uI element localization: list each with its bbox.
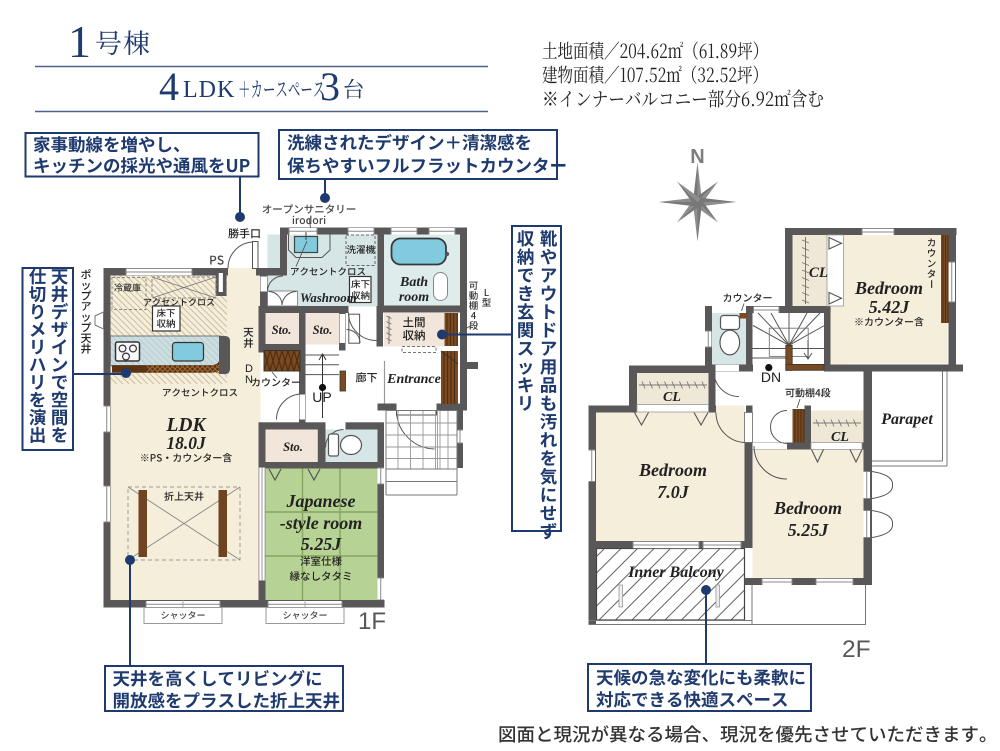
svg-text:1F: 1F <box>358 608 386 635</box>
svg-text:1: 1 <box>68 16 91 67</box>
svg-text:Washroom: Washroom <box>300 291 357 305</box>
svg-text:UP: UP <box>312 389 331 405</box>
svg-text:CL: CL <box>831 430 849 445</box>
svg-text:Inner Balcony: Inner Balcony <box>627 564 724 581</box>
svg-text:Bedroom: Bedroom <box>773 498 842 518</box>
svg-text:CL: CL <box>809 265 828 281</box>
svg-text:CL: CL <box>663 390 681 405</box>
svg-text:Parapet: Parapet <box>880 411 933 428</box>
svg-text:5.25J: 5.25J <box>301 534 343 554</box>
svg-text:5.42J: 5.42J <box>869 297 911 317</box>
svg-text:N: N <box>690 146 704 168</box>
svg-text:N: N <box>245 374 253 386</box>
svg-text:Bedroom: Bedroom <box>854 278 923 298</box>
svg-text:Entrance: Entrance <box>386 372 441 387</box>
svg-text:Bedroom: Bedroom <box>638 460 707 480</box>
svg-text:LDK: LDK <box>183 77 235 103</box>
svg-text:Sto.: Sto. <box>313 323 333 337</box>
svg-text:Sto.: Sto. <box>272 323 292 337</box>
svg-text:-style room: -style room <box>280 513 363 533</box>
svg-text:4: 4 <box>159 64 179 109</box>
svg-text:room: room <box>399 290 429 305</box>
svg-text:18.0J: 18.0J <box>166 433 207 453</box>
svg-text:Bath: Bath <box>399 275 428 290</box>
svg-text:3: 3 <box>320 64 340 109</box>
svg-text:5.25J: 5.25J <box>788 520 830 540</box>
svg-text:2F: 2F <box>842 636 871 663</box>
svg-text:Sto.: Sto. <box>283 440 303 454</box>
svg-text:Japanese: Japanese <box>286 491 356 511</box>
svg-text:7.0J: 7.0J <box>657 482 690 502</box>
svg-text:DN: DN <box>761 369 781 385</box>
